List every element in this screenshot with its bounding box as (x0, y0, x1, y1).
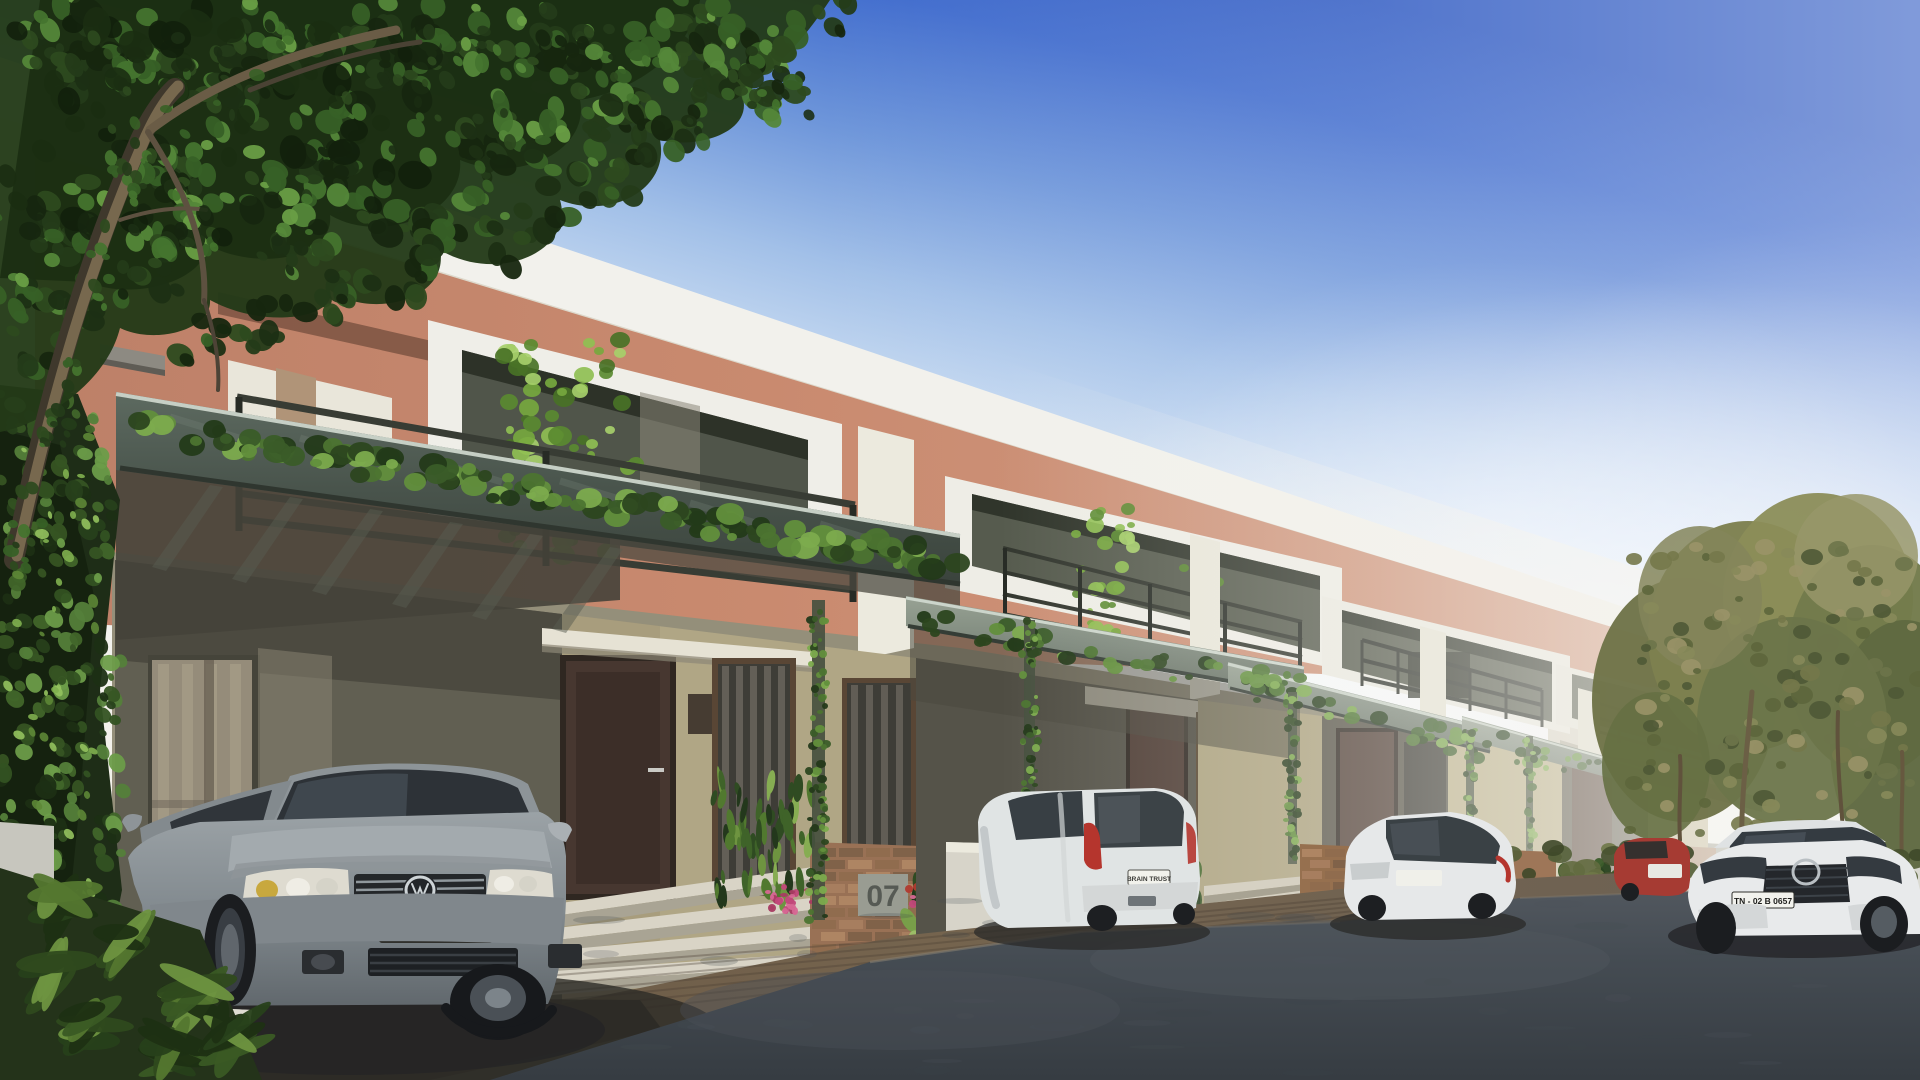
svg-text:BRAIN TRUST: BRAIN TRUST (1127, 876, 1171, 883)
svg-text:07: 07 (866, 880, 899, 913)
